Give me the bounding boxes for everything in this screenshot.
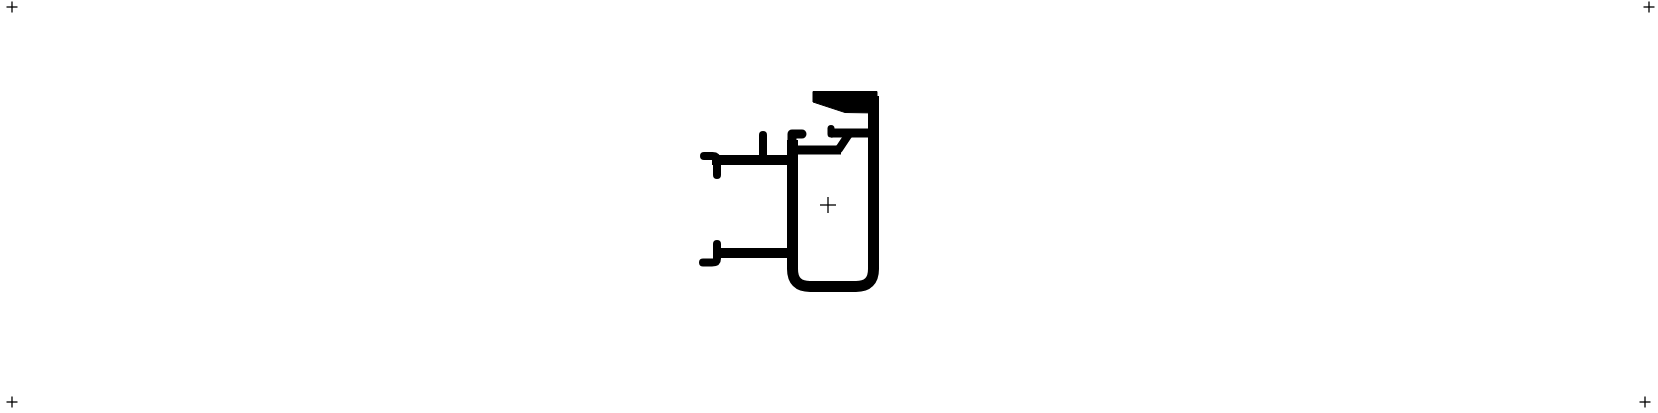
- drawing-canvas: [0, 0, 1658, 413]
- profile-upper-arm-end-hook: [704, 156, 717, 175]
- registration-mark-bottom-right: [1640, 397, 1651, 408]
- profile-lower-arm-end-hook: [703, 244, 717, 263]
- drawing-svg: [0, 0, 1658, 413]
- registration-mark-bottom-left: [7, 397, 18, 408]
- profile-top-wedge-lip: [813, 92, 877, 114]
- extrusion-profile-drawing[interactable]: [703, 92, 877, 287]
- registration-mark-top-right: [1644, 2, 1655, 13]
- profile-main-chamber-u-wall: [793, 96, 874, 287]
- center-mark-profile-center: [820, 197, 836, 213]
- center-crosshair: [820, 197, 836, 213]
- registration-mark-top-left: [7, 2, 18, 13]
